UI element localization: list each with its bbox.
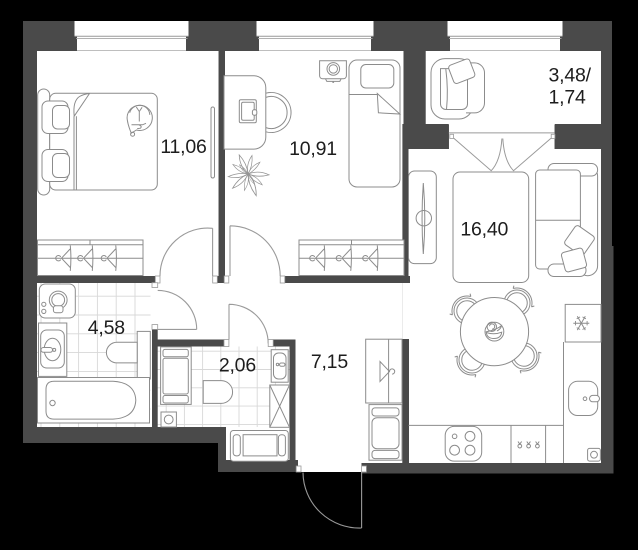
svg-text:2,06: 2,06	[219, 355, 256, 377]
svg-text:1,74: 1,74	[549, 87, 587, 109]
svg-text:3,48/: 3,48/	[549, 65, 592, 87]
svg-text:16,40: 16,40	[460, 219, 508, 241]
svg-text:11,06: 11,06	[160, 136, 206, 158]
svg-text:10,91: 10,91	[289, 138, 337, 160]
svg-text:4,58: 4,58	[88, 317, 125, 339]
svg-text:7,15: 7,15	[311, 351, 349, 373]
